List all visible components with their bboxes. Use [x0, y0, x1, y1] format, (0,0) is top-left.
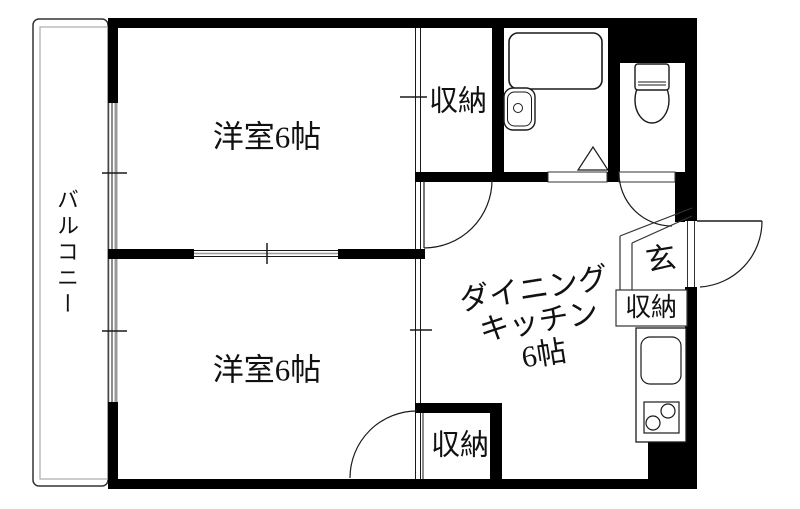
room-top-label: 洋室6帖	[213, 122, 322, 153]
entry-closet-label: 収納	[625, 295, 677, 321]
toilet-door-opening	[619, 172, 675, 182]
room-bottom-label: 洋室6帖	[213, 355, 322, 386]
room-divider-sliding-door	[194, 251, 338, 257]
room-bottom-door	[350, 411, 417, 478]
floorplan: バルコニー 洋室6帖 洋室6帖 収納 収納 ダイニング キッチン 6帖 玄 収納	[0, 0, 800, 509]
kitchen-sink-icon	[641, 337, 681, 384]
bathtub-icon	[509, 33, 602, 89]
toilet-icon	[635, 64, 669, 123]
closet-top-label: 収納	[429, 88, 487, 117]
kitchen-counter	[636, 328, 686, 442]
bathroom-door-opening	[548, 172, 607, 182]
room-top-door	[424, 180, 492, 248]
entrance-door	[697, 221, 762, 287]
entrance-label: 玄	[644, 243, 678, 277]
floorplan-drawing	[0, 0, 800, 509]
balcony-label: バルコニー	[55, 188, 77, 318]
shower-door-icon	[578, 147, 608, 170]
entrance-door-opening	[685, 221, 697, 287]
washbasin-icon	[504, 88, 535, 130]
closet-bottom-label: 収納	[431, 432, 489, 461]
stove-icon	[644, 402, 679, 433]
